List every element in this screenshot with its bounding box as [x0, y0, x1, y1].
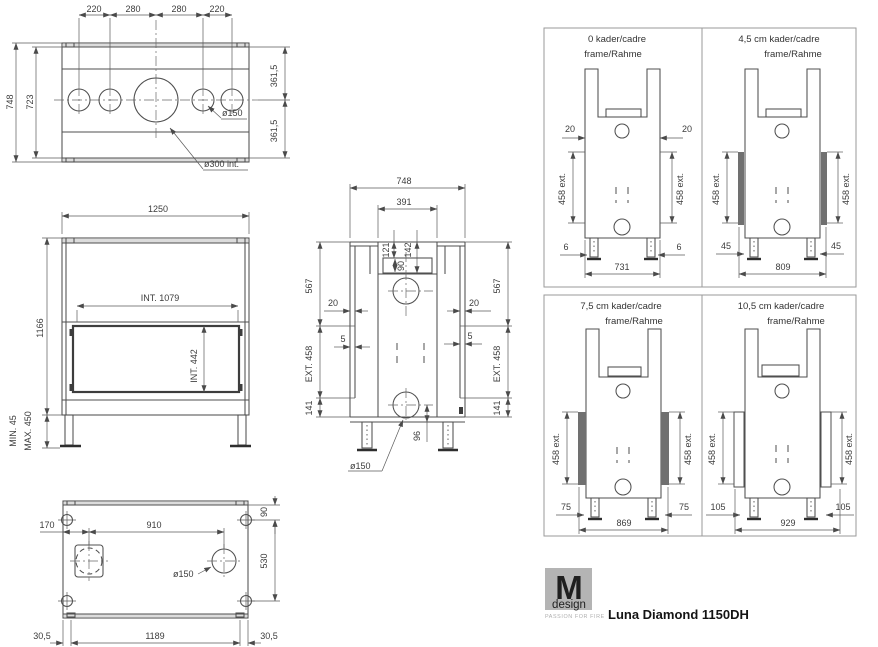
dim-label: 361,5 [269, 120, 279, 143]
top-view: 220 280 280 220 748 723 361,5 361,5 ø150… [5, 4, 290, 170]
dim-label: 121 [381, 242, 391, 257]
dim-label: 6 [676, 242, 681, 252]
dim-label: 1189 [145, 631, 164, 641]
front-view: 1250 1166 MIN. 45 MAX. 450 INT. 1079 INT… [8, 204, 251, 451]
frame-options-grid [544, 28, 856, 536]
dim-label: 20 [469, 298, 479, 308]
dim-label: 142 [403, 242, 413, 257]
dim-label: 723 [25, 94, 35, 109]
dim-label: 170 [39, 520, 54, 530]
dim-label: MAX. 450 [23, 411, 33, 451]
frame-subtitle: frame/Rahme [767, 316, 825, 327]
frame-title: 0 kader/cadre [588, 34, 646, 45]
dim-label: 869 [616, 518, 631, 528]
dim-label: 45 [721, 241, 731, 251]
dim-label: 929 [780, 518, 795, 528]
dim-label: 30,5 [33, 631, 51, 641]
dim-label: 1250 [148, 204, 168, 214]
hole-diameter-label: ø150 [222, 108, 243, 118]
bottom-view: 170 910 90 530 ø150 30,5 1189 30,5 [33, 496, 280, 646]
side-view: 748 391 121 142 90 567 EXT. 458 141 567 … [304, 176, 512, 471]
dim-label: 530 [259, 553, 269, 568]
logo-brand: design [552, 599, 586, 611]
dim-label: 96 [412, 431, 422, 441]
dim-label: 280 [125, 4, 140, 14]
dim-label: 731 [614, 262, 629, 272]
dim-label: 458 ext. [675, 173, 685, 205]
hinge-mark [70, 384, 74, 391]
drawing-canvas: 220 280 280 220 748 723 361,5 361,5 ø150… [0, 0, 878, 647]
dim-label: 458 ext. [711, 173, 721, 205]
dim-label: 75 [679, 502, 689, 512]
dim-label: 391 [396, 197, 411, 207]
frame-panel-1: 4,5 cm kader/cadre frame/Rahme 458 ext. … [711, 34, 851, 278]
frame-panel-0: 0 kader/cadre frame/Rahme 20 20 458 ext.… [557, 34, 692, 278]
dim-label: 105 [710, 502, 725, 512]
dim-label: 75 [561, 502, 571, 512]
logo-tagline: PASSION FOR FIRE [545, 614, 605, 620]
frame-strip [821, 412, 831, 487]
dim-label: 90 [259, 507, 269, 517]
dim-label: 458 ext. [844, 433, 854, 465]
hinge-mark [239, 329, 243, 336]
hinge-mark [70, 329, 74, 336]
dim-label: 458 ext. [557, 173, 567, 205]
dim-label: INT. 1079 [141, 293, 180, 303]
dim-label: EXT. 458 [492, 346, 502, 383]
frame-strip [578, 412, 586, 485]
dim-label: 458 ext. [683, 433, 693, 465]
latch-mark [459, 407, 463, 414]
frame-panel-3: 10,5 cm kader/cadre frame/Rahme 458 ext.… [706, 301, 854, 534]
dim-label: 20 [328, 298, 338, 308]
hole-diameter-label: ø150 [350, 461, 371, 471]
technical-drawing-sheet: 220 280 280 220 748 723 361,5 361,5 ø150… [0, 0, 878, 647]
brand-block: M design PASSION FOR FIRE Luna Diamond 1… [545, 568, 749, 622]
dim-label: INT. 442 [189, 349, 199, 383]
frame-strip [821, 152, 827, 225]
dim-label: 910 [146, 520, 161, 530]
hole-diameter-label: ø150 [173, 569, 194, 579]
dim-label: 458 ext. [841, 173, 851, 205]
dim-label: 280 [171, 4, 186, 14]
dim-label: 458 ext. [551, 433, 561, 465]
dim-label: 809 [775, 262, 790, 272]
dim-label: 141 [492, 400, 502, 415]
dim-label: 30,5 [260, 631, 278, 641]
dim-label: 90 [396, 261, 406, 271]
dim-label: MIN. 45 [8, 415, 18, 447]
dim-label: 361,5 [269, 65, 279, 88]
dim-label: 5 [467, 331, 472, 341]
dim-label: 5 [340, 334, 345, 344]
dim-label: 458 ext. [707, 433, 717, 465]
dim-label: 567 [492, 278, 502, 293]
dim-label: EXT. 458 [304, 346, 314, 383]
dim-label: 20 [682, 124, 692, 134]
frame-subtitle: frame/Rahme [605, 316, 663, 327]
dim-label: 6 [563, 242, 568, 252]
dim-label: 748 [396, 176, 411, 186]
dim-label: 105 [835, 502, 850, 512]
dim-label: 220 [209, 4, 224, 14]
frame-subtitle: frame/Rahme [584, 49, 642, 60]
frame-panel-2: 7,5 cm kader/cadre frame/Rahme 458 ext. … [551, 301, 693, 534]
dim-label: 45 [831, 241, 841, 251]
frame-title: 7,5 cm kader/cadre [580, 301, 661, 312]
dim-label: 1166 [35, 318, 45, 337]
product-title: Luna Diamond 1150DH [608, 607, 749, 622]
dim-label: 220 [86, 4, 101, 14]
frame-strip [738, 152, 744, 225]
frame-subtitle: frame/Rahme [764, 49, 822, 60]
frame-strip [734, 412, 744, 487]
frame-title: 10,5 cm kader/cadre [738, 301, 825, 312]
dim-label: 567 [304, 278, 314, 293]
hole-diameter-label: ø300 int. [204, 159, 239, 169]
dim-label: 141 [304, 400, 314, 415]
hinge-mark [239, 384, 243, 391]
frame-strip [661, 412, 669, 485]
frame-title: 4,5 cm kader/cadre [738, 34, 819, 45]
dim-label: 20 [565, 124, 575, 134]
dim-label: 748 [5, 94, 15, 109]
